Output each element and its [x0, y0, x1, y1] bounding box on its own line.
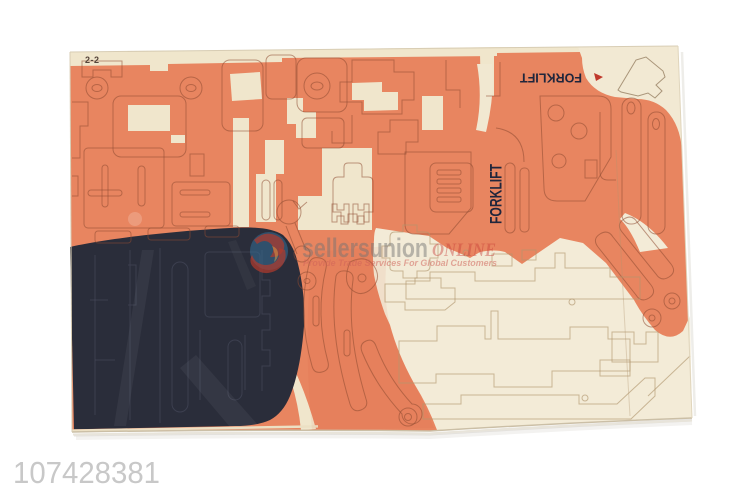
svg-text:FORKLIFT: FORKLIFT	[486, 164, 505, 224]
svg-text:FORKLIFT: FORKLIFT	[520, 71, 582, 85]
svg-text:2-2: 2-2	[85, 55, 100, 65]
svg-text:107428381: 107428381	[13, 455, 160, 490]
svg-text:Provide Trade Services For Glo: Provide Trade Services For Global Custom…	[303, 258, 497, 269]
